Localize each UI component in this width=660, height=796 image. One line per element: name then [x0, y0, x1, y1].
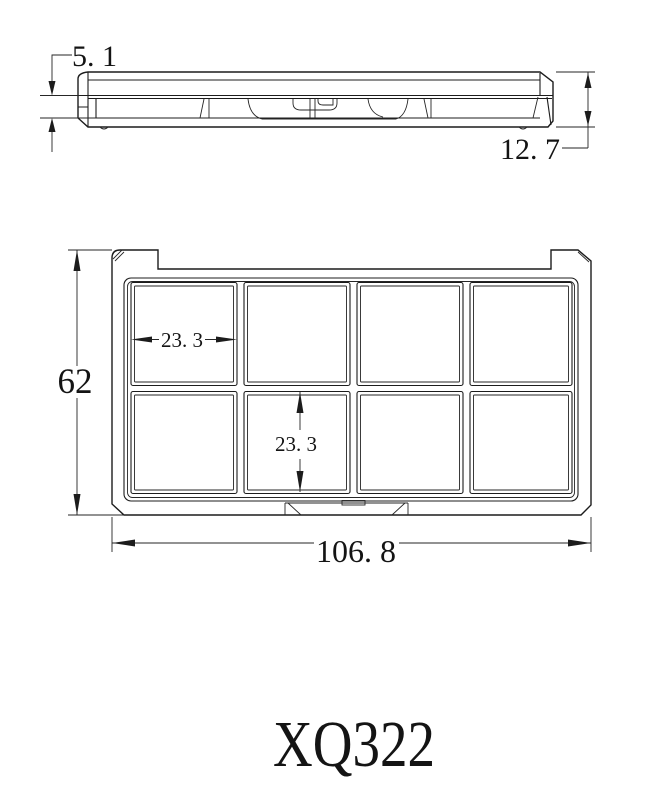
- dim-106-8-value: 106. 8: [316, 533, 396, 569]
- side-right-recess-slant: [533, 97, 538, 118]
- tray-outer-rect: [124, 278, 578, 501]
- dim-23-3h-value: 23. 3: [161, 328, 203, 352]
- dim-12-7-value: 12. 7: [500, 133, 560, 166]
- pan-r2c1-outer: [131, 392, 237, 494]
- dim-total-height: 12. 7: [500, 72, 595, 166]
- dim-overall-width: 106. 8: [112, 517, 591, 569]
- dim-23-3v-arrow-down: [297, 471, 304, 492]
- dim-62-value: 62: [58, 361, 93, 401]
- side-profile-view: 5. 1 12. 7: [40, 40, 595, 166]
- pan-r1c2-inner: [248, 286, 347, 382]
- dim-5-1-leader: [52, 55, 72, 152]
- side-hinge-lines: [78, 99, 96, 119]
- pan-r2c4-outer: [470, 392, 572, 494]
- pan-r1c4-inner: [474, 286, 569, 382]
- tray-inner-rect: [128, 282, 575, 498]
- dim-cell-width: 23. 3: [131, 328, 237, 352]
- dim-106-8-arrow-left: [112, 540, 135, 547]
- drawing-sheet: 5. 1 12. 7: [0, 0, 660, 796]
- dim-12-7-line: [562, 72, 588, 148]
- dim-62-arrow-down: [74, 494, 81, 515]
- pan-r1c3-inner: [361, 286, 460, 382]
- side-recess-rib-path: [368, 99, 383, 117]
- front-thumb-notch: [285, 501, 408, 516]
- dim-106-8-arrow-right: [568, 540, 591, 547]
- pan-r2c3-outer: [357, 392, 463, 494]
- pan-grid: [131, 283, 572, 494]
- dim-12-7-arrow-up: [585, 73, 592, 88]
- side-latch-verticals: [310, 99, 315, 118]
- technical-drawing: 5. 1 12. 7: [0, 0, 660, 796]
- product-code-title: XQ322: [273, 708, 435, 781]
- pan-r2c3-inner: [361, 395, 460, 490]
- dim-62-arrow-up: [74, 250, 81, 271]
- pan-r1c4-outer: [470, 283, 572, 386]
- pan-r2c4-inner: [474, 395, 569, 490]
- pan-r1c3-outer: [357, 283, 463, 386]
- dim-12-7-arrow-down: [585, 111, 592, 126]
- dim-overall-height: 62: [58, 250, 125, 515]
- dim-23-3v-value: 23. 3: [275, 432, 317, 456]
- front-body-outline: [112, 250, 591, 515]
- front-open-view: 62 106. 8 23. 3 23. 3: [58, 250, 592, 569]
- side-center-recess-path: [248, 99, 408, 119]
- pan-r2c1-inner: [135, 395, 234, 490]
- side-divider-right: [424, 99, 431, 118]
- dim-5-1-value: 5. 1: [72, 40, 117, 73]
- front-tab-chamfer-details: [113, 250, 589, 262]
- dim-5-1-arrow-up: [49, 118, 56, 132]
- dim-5-1-arrow-down: [49, 81, 56, 96]
- dim-cell-height: 23. 3: [275, 392, 317, 492]
- side-divider-left: [200, 99, 209, 118]
- side-latch-step: [318, 99, 333, 105]
- pan-r1c2-outer: [244, 283, 350, 386]
